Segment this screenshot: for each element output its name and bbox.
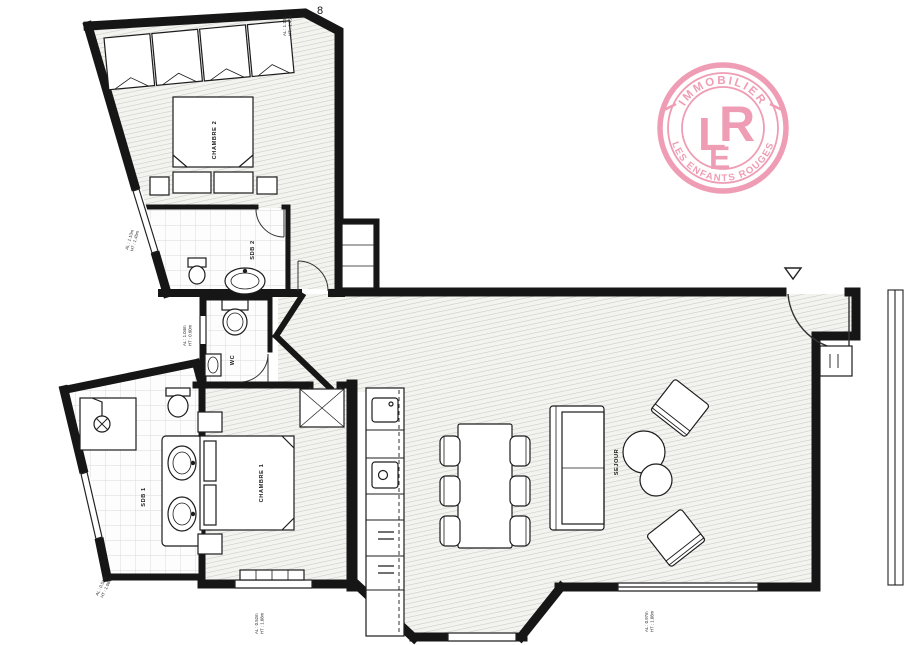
sofa-icon	[550, 406, 604, 530]
svg-text:HT : 1.08m: HT : 1.08m	[259, 612, 264, 634]
dining-table-icon	[458, 424, 512, 548]
floor-plan-page: CHAMBRE 2 SDB 2 WC SDB 1 CHAMBRE 1 SEJOU…	[0, 0, 908, 645]
svg-text:HT : 1.08m: HT : 1.08m	[649, 610, 654, 632]
duct-icon	[820, 346, 852, 376]
closet-icon	[342, 224, 374, 288]
toilet-icon	[166, 388, 190, 417]
dim-left-mid: AL : 1.04m	[182, 325, 187, 346]
toilet-icon	[222, 300, 248, 335]
radiator-icon	[240, 570, 304, 580]
logo-letter-e: E	[709, 140, 730, 176]
bathroom1-label: SDB 1	[141, 487, 147, 506]
corner-sink-icon	[205, 354, 221, 376]
toilet-icon	[188, 258, 206, 284]
bathroom2-label: SDB 2	[250, 240, 256, 259]
bedroom1-label: CHAMBRE 1	[259, 464, 265, 503]
floor-plan-image: CHAMBRE 2 SDB 2 WC SDB 1 CHAMBRE 1 SEJOU…	[0, 0, 908, 645]
kitchen-sink-icon	[372, 398, 398, 422]
kitchen-counter-icon	[366, 388, 404, 636]
bedroom2-label: CHAMBRE 2	[212, 121, 218, 160]
closet-icon	[300, 389, 344, 427]
shower-icon	[80, 398, 136, 450]
double-washbasin-icon	[162, 436, 202, 546]
dim-top: AL : 1.10m	[282, 15, 287, 36]
dim-bottom-right: AL : 0.97m	[644, 611, 649, 632]
terrace-edge	[888, 290, 903, 585]
svg-text:HT : 0.60m: HT : 0.60m	[187, 324, 192, 346]
page-mark: 8	[317, 5, 323, 17]
entry-arrow-icon	[785, 268, 801, 279]
living-label: SEJOUR	[614, 449, 620, 476]
cooktop-icon	[372, 462, 398, 488]
wc-label: WC	[230, 355, 236, 366]
dim-bottom-bedroom1: AL : 0.52m	[254, 613, 259, 634]
washbasin-icon	[225, 268, 265, 294]
coffee-table-icon	[640, 464, 672, 496]
svg-text:HT : 1.45m: HT : 1.45m	[287, 14, 292, 36]
agency-logo: IMMOBILIER LES ENFANTS ROUGES L R E	[660, 65, 786, 191]
